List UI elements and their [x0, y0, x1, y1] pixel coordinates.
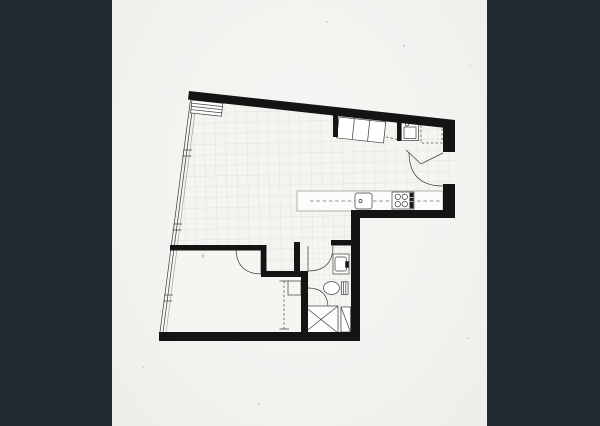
cooktop	[392, 192, 414, 209]
letterbox-right	[487, 0, 600, 426]
kitchen-sink	[355, 193, 372, 209]
floor-plan-drawing	[112, 0, 487, 426]
toilet	[324, 282, 349, 295]
bathroom-cabinet	[341, 307, 351, 332]
letterbox-left	[0, 0, 112, 426]
image-viewer-canvas	[0, 0, 600, 426]
shower-tray	[304, 306, 338, 333]
wash-basin	[333, 254, 349, 274]
floor-plan-page	[112, 0, 487, 426]
